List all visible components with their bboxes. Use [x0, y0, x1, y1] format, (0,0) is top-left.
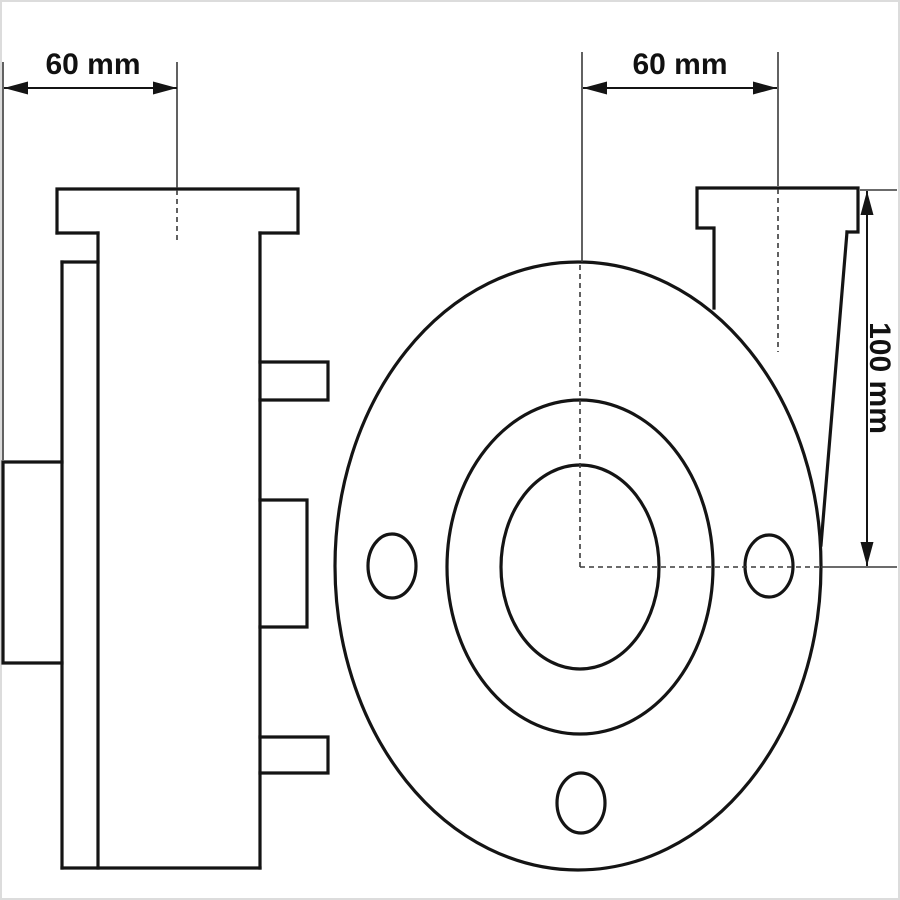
front-view [335, 188, 858, 870]
arrowhead-right-icon [153, 82, 177, 95]
pump-casing-engineering-drawing: 60 mm 60 mm 100 mm [0, 0, 900, 900]
bolt-hole-left [368, 534, 416, 598]
dim-label-side-width: 60 mm [45, 48, 140, 81]
dim-label-discharge-offset: 60 mm [632, 48, 727, 81]
arrowhead-left-icon [583, 82, 607, 95]
bolt-hole-right [745, 535, 793, 597]
mounting-lug-bottom [260, 737, 328, 773]
mounting-lug-top [260, 362, 328, 400]
arrowhead-up-icon [861, 191, 874, 215]
side-view [3, 189, 328, 868]
dimension-60mm-left: 60 mm [3, 48, 177, 460]
shaft-boss [260, 500, 307, 627]
dimension-100mm: 100 mm [821, 190, 897, 567]
technical-drawing-page: 60 mm 60 mm 100 mm [0, 0, 900, 900]
page-border [1, 1, 899, 899]
arrowhead-right-icon [753, 82, 777, 95]
dim-label-casing-height: 100 mm [863, 322, 896, 434]
suction-flange [3, 462, 62, 663]
discharge-pipe-right-edge [821, 232, 847, 545]
dimension-60mm-right: 60 mm [582, 48, 778, 262]
bolt-hole-bottom [557, 773, 605, 833]
arrowhead-left-icon [4, 82, 28, 95]
casing-outer-contour [335, 262, 821, 870]
arrowhead-down-icon [861, 542, 874, 566]
